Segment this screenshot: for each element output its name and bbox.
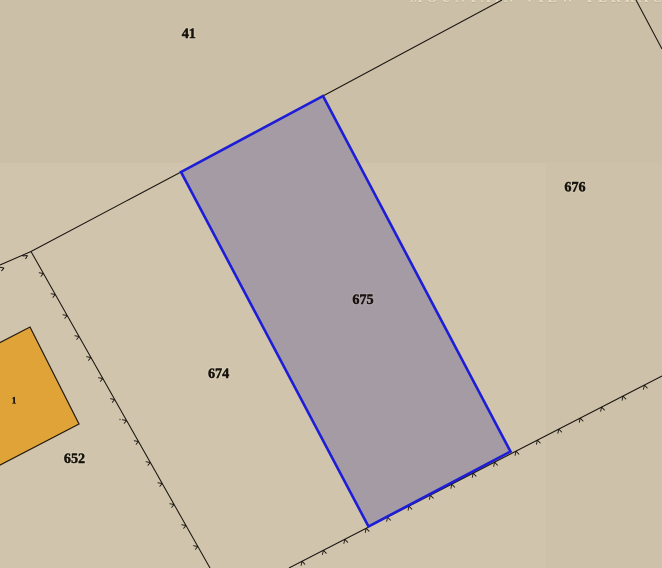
svg-text:675: 675 [352, 292, 373, 308]
svg-text:674: 674 [208, 366, 229, 382]
svg-text:MOUNTAIN VIEW TERRACE: MOUNTAIN VIEW TERRACE [410, 0, 662, 5]
svg-text:676: 676 [564, 180, 585, 196]
svg-text:1: 1 [12, 397, 17, 407]
svg-text:652: 652 [64, 451, 85, 467]
svg-text:41: 41 [182, 26, 196, 42]
